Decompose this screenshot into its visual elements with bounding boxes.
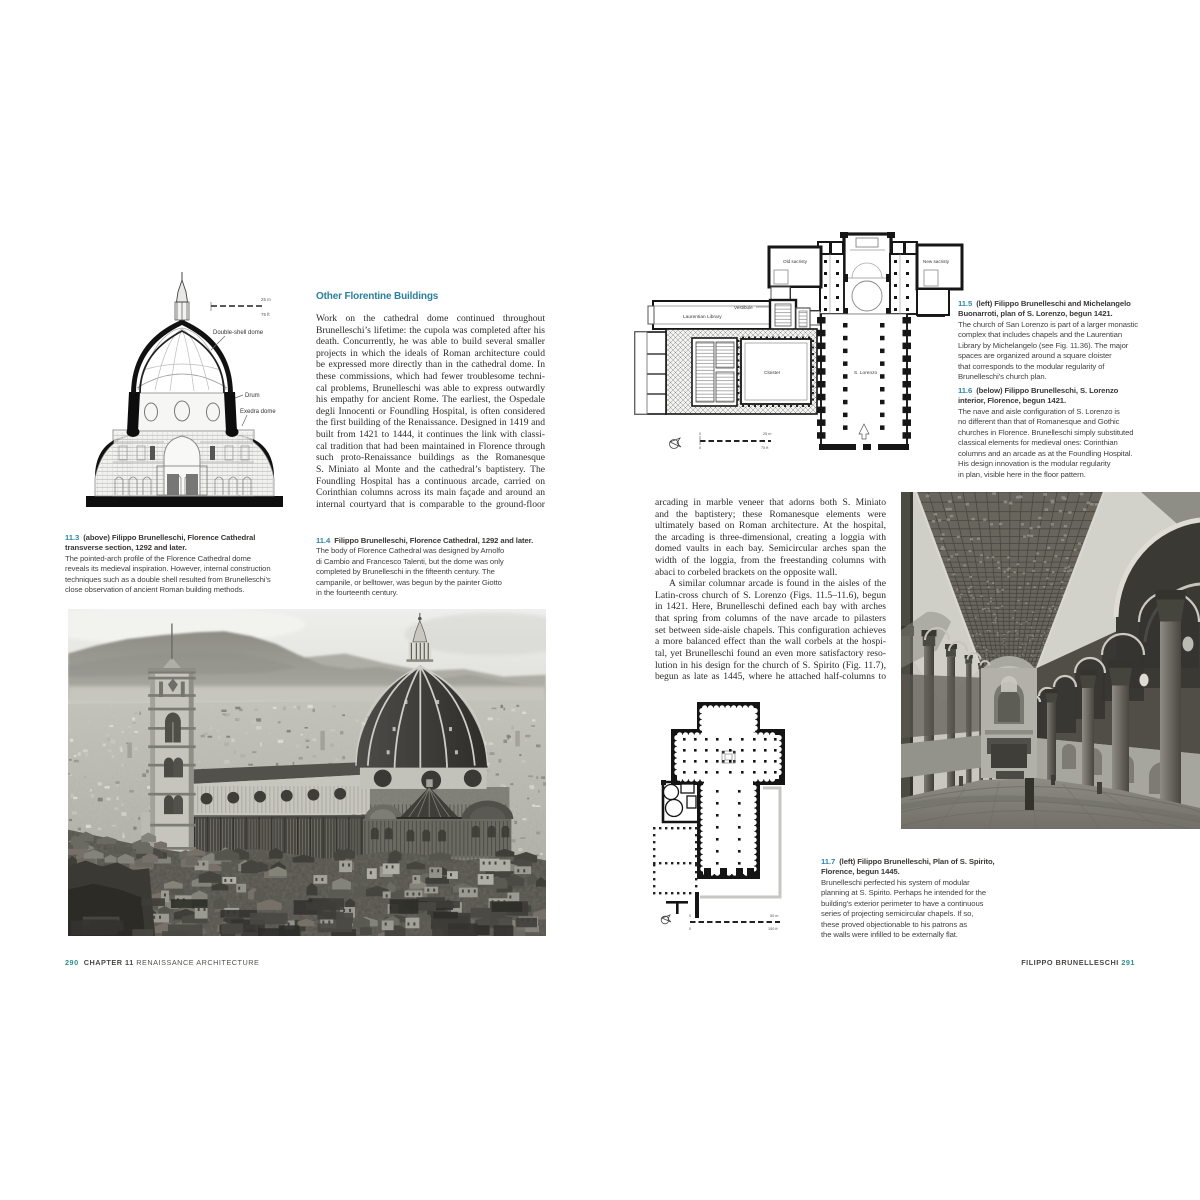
svg-text:Old sacristy: Old sacristy	[783, 259, 808, 264]
svg-text:Exedra dome: Exedra dome	[240, 409, 276, 415]
svg-text:75 ft: 75 ft	[261, 312, 270, 317]
svg-text:0: 0	[699, 432, 701, 436]
svg-text:150 ft: 150 ft	[768, 927, 778, 931]
svg-text:Drum: Drum	[245, 393, 260, 399]
svg-text:Cloister: Cloister	[764, 370, 781, 376]
svg-text:0: 0	[699, 446, 701, 450]
svg-text:75 ft: 75 ft	[761, 446, 769, 450]
svg-text:0: 0	[689, 927, 691, 931]
svg-text:S. Lorenzo: S. Lorenzo	[854, 370, 878, 376]
svg-text:Laurentian Library: Laurentian Library	[683, 314, 722, 320]
svg-text:50 m: 50 m	[770, 914, 778, 918]
svg-text:New sacristy: New sacristy	[923, 259, 950, 264]
svg-text:Double-shell dome: Double-shell dome	[213, 330, 264, 336]
svg-text:25 m: 25 m	[261, 297, 271, 302]
svg-text:25 m: 25 m	[763, 432, 771, 436]
svg-text:Vestibule: Vestibule	[734, 305, 753, 310]
svg-text:0: 0	[689, 914, 691, 918]
